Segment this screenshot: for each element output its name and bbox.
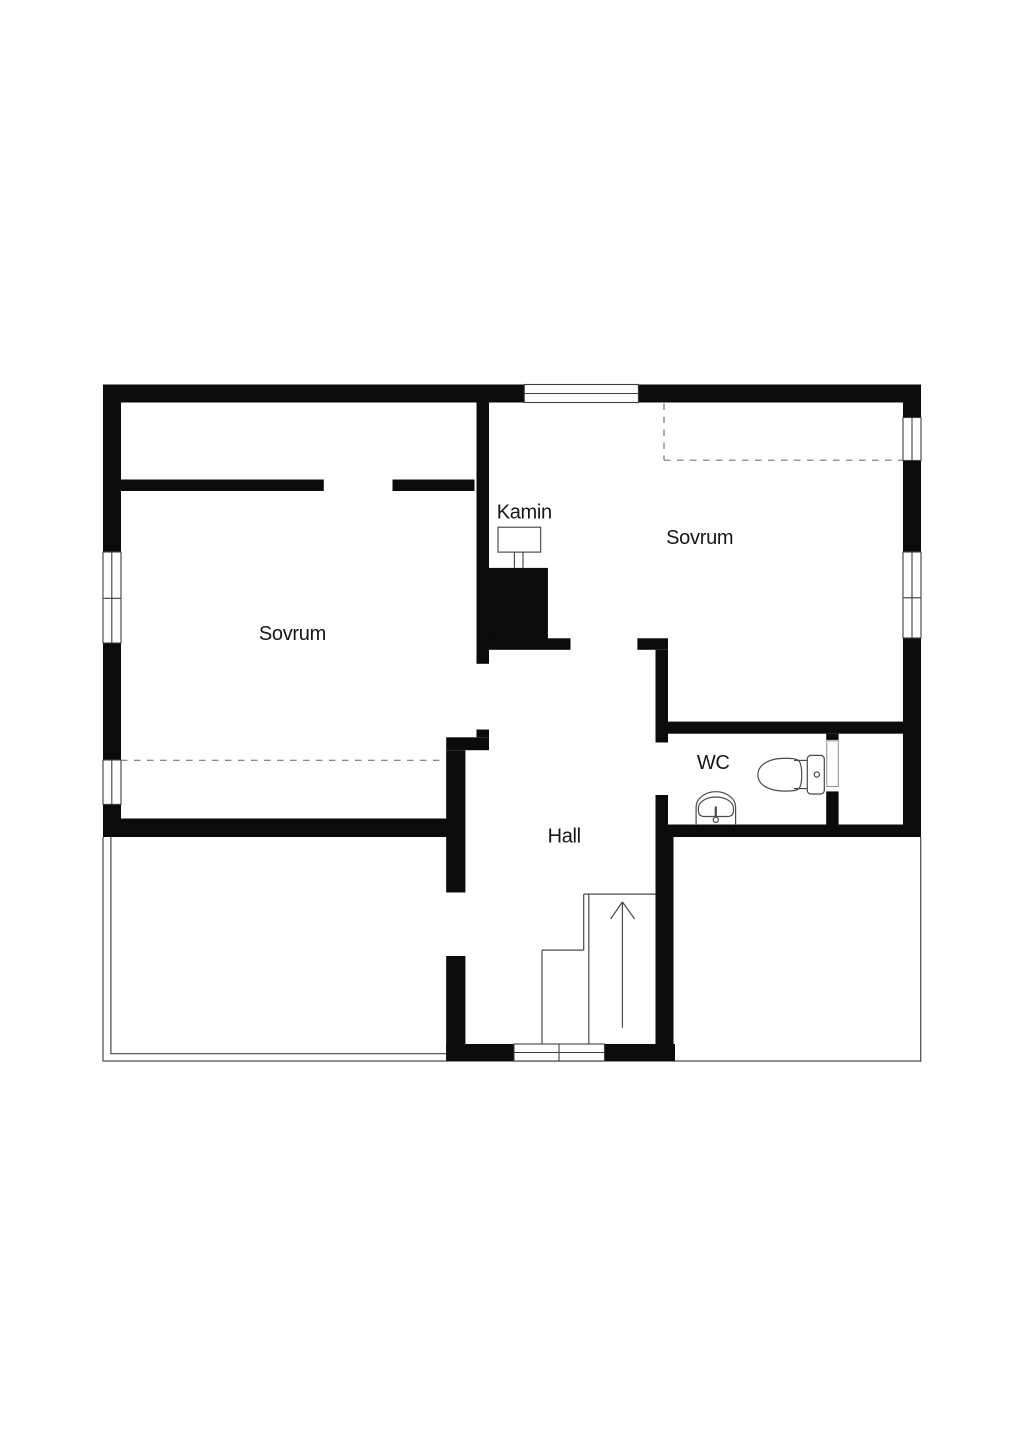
svg-text:Hall: Hall: [548, 825, 581, 847]
svg-text:Kamin: Kamin: [497, 501, 552, 523]
svg-text:WC: WC: [697, 752, 730, 774]
svg-text:Sovrum: Sovrum: [666, 527, 733, 549]
svg-text:Sovrum: Sovrum: [259, 623, 326, 645]
